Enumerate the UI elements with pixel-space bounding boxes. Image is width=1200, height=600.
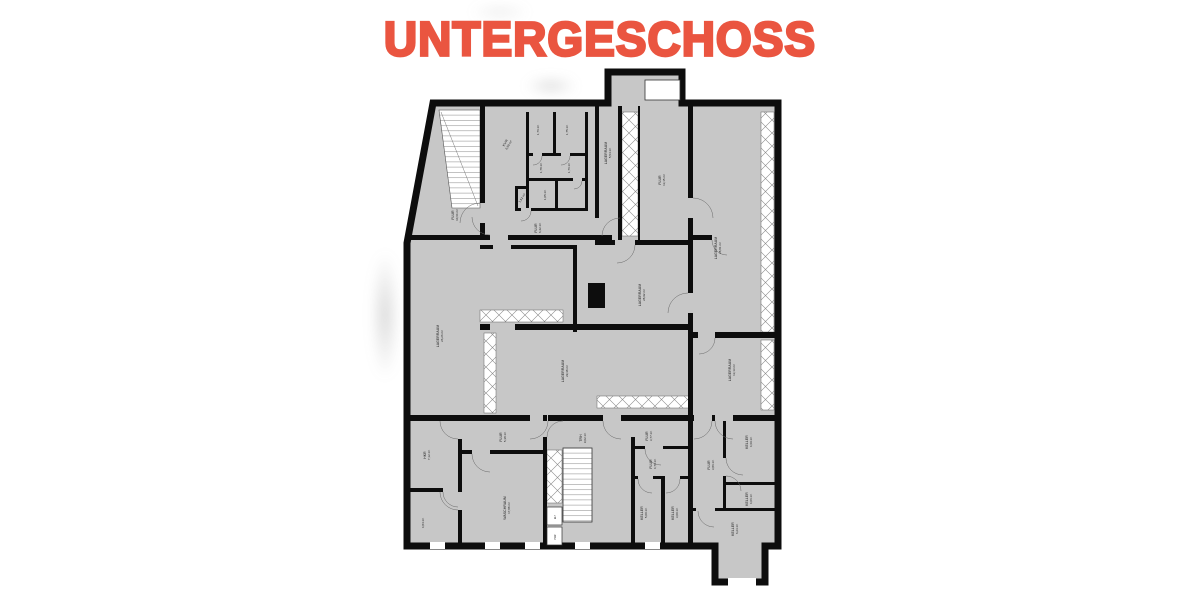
room-label-cell-c: 1,78 m² [539,163,543,173]
room-label-flur-c: FLUR13,15 m² [658,174,666,186]
room-label-hkr: HKR7,12 m² [423,450,431,460]
floor-plan: FLUR10,64 m² KVR6,69 m² 1,76 m² 1,75 m² … [395,68,795,588]
room-label-flur-e: FLUR3,77 m² [645,431,653,441]
utility-label-har: HAR [554,534,557,539]
room-label-cell-b: 1,75 m² [565,125,569,135]
room-label-cell-a: 1,76 m² [536,125,540,135]
page-title: UNTERGESCHOSS [0,11,1200,67]
top-shaft [645,80,680,100]
room-label-cell-d: 1,76 m² [567,163,571,173]
staircase-main [563,448,592,522]
room-label-484: 4,84 m² [421,518,425,528]
room-label-flur-d: FLUR5,38 m² [499,432,507,442]
pillar [588,283,605,308]
utility-label-elt: ELT [555,514,557,519]
room-label-flur-g: FLUR3,86 m² [707,460,715,470]
room-label-trh: TRH9,02 m² [579,433,587,443]
room-label-flur-b: FLUR6,42 m² [534,223,542,233]
page: UNTERGESCHOSS [0,0,1200,600]
room-label-cell-f: 1,05 m² [543,190,547,200]
room-label-flur-f: FLUR4,70 m² [649,459,657,469]
room-label-flur-a: FLUR10,64 m² [451,209,459,221]
